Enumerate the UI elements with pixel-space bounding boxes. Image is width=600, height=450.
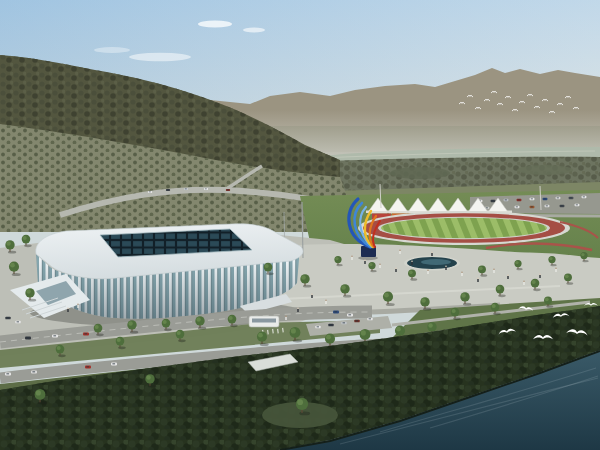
rendered-scene <box>0 0 600 450</box>
infield <box>381 218 547 238</box>
bus <box>249 316 279 327</box>
scene-canvas <box>0 0 600 450</box>
running-track <box>358 211 570 245</box>
